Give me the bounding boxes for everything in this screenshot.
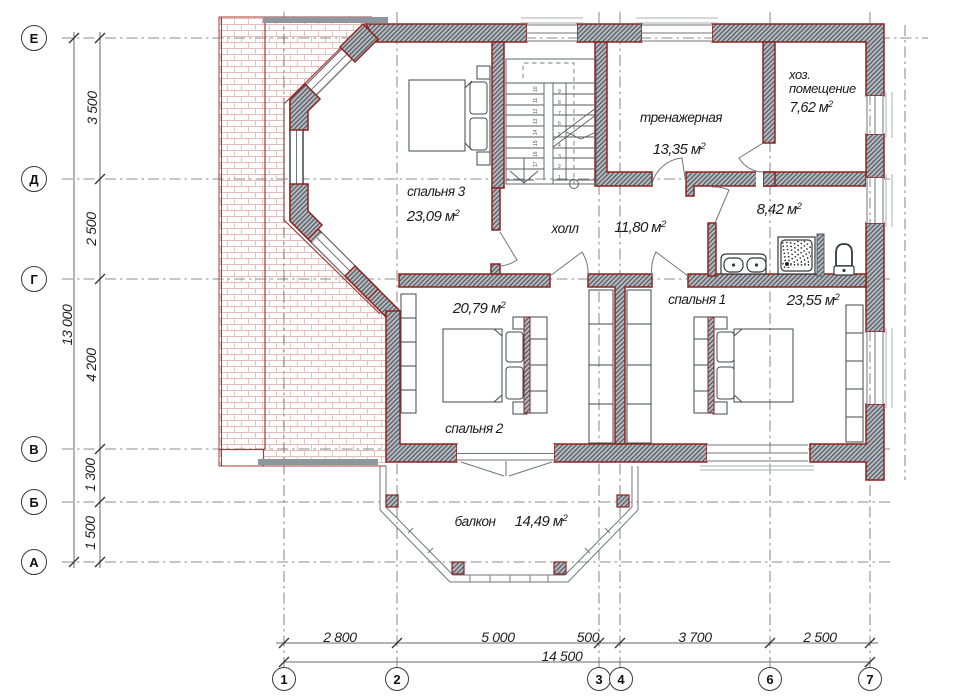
svg-text:11: 11 <box>533 98 539 103</box>
svg-text:спальня 3: спальня 3 <box>407 184 466 199</box>
svg-text:Д: Д <box>29 172 39 187</box>
svg-text:2: 2 <box>393 672 400 687</box>
svg-text:7: 7 <box>866 672 873 687</box>
svg-text:7,62 м2: 7,62 м2 <box>790 99 834 116</box>
svg-text:1 500: 1 500 <box>82 516 98 550</box>
svg-text:10: 10 <box>533 86 539 92</box>
svg-text:13 000: 13 000 <box>59 304 75 346</box>
svg-text:5 000: 5 000 <box>481 629 515 645</box>
svg-text:балкон: балкон <box>455 514 497 529</box>
svg-text:2 500: 2 500 <box>83 212 99 247</box>
svg-text:холл: холл <box>550 221 579 236</box>
svg-text:7: 7 <box>558 111 561 117</box>
svg-text:Е: Е <box>30 31 39 46</box>
svg-text:14 500: 14 500 <box>541 648 583 664</box>
svg-text:хоз.: хоз. <box>788 67 811 82</box>
svg-text:5: 5 <box>558 132 561 138</box>
svg-text:14,49 м2: 14,49 м2 <box>515 513 569 530</box>
svg-text:15: 15 <box>533 140 539 146</box>
svg-text:16: 16 <box>533 151 539 157</box>
svg-text:23,09 м2: 23,09 м2 <box>406 208 461 225</box>
svg-text:Г: Г <box>30 272 38 287</box>
svg-text:Б: Б <box>29 495 38 510</box>
svg-text:спальня 2: спальня 2 <box>445 421 504 436</box>
svg-text:3 700: 3 700 <box>678 629 712 645</box>
svg-text:1 300: 1 300 <box>82 458 98 492</box>
svg-text:11,80 м2: 11,80 м2 <box>614 219 667 236</box>
svg-text:4: 4 <box>617 672 625 687</box>
svg-text:3 500: 3 500 <box>84 91 100 125</box>
svg-text:1: 1 <box>558 175 561 181</box>
svg-text:4: 4 <box>558 143 561 149</box>
svg-text:А: А <box>29 555 39 570</box>
svg-text:8,42 м2: 8,42 м2 <box>757 201 803 218</box>
svg-text:6: 6 <box>766 672 773 687</box>
svg-text:13,35 м2: 13,35 м2 <box>653 141 707 158</box>
svg-text:500: 500 <box>577 629 600 645</box>
svg-text:6: 6 <box>558 121 561 127</box>
svg-text:3: 3 <box>558 154 561 160</box>
svg-text:спальня 1: спальня 1 <box>668 292 726 307</box>
svg-text:8: 8 <box>558 100 561 106</box>
svg-text:В: В <box>29 442 38 457</box>
svg-text:тренажерная: тренажерная <box>640 110 722 125</box>
svg-text:20,79 м2: 20,79 м2 <box>452 300 507 317</box>
svg-text:2 800: 2 800 <box>322 629 357 645</box>
svg-text:4 200: 4 200 <box>83 348 99 382</box>
svg-text:13: 13 <box>533 118 539 124</box>
svg-text:3: 3 <box>595 672 602 687</box>
svg-text:помещение: помещение <box>789 81 856 96</box>
svg-text:23,55 м2: 23,55 м2 <box>786 292 841 309</box>
svg-text:12: 12 <box>533 108 539 114</box>
svg-text:2 500: 2 500 <box>802 629 837 645</box>
svg-text:17: 17 <box>533 161 539 167</box>
svg-text:1: 1 <box>280 672 287 687</box>
svg-text:2: 2 <box>558 164 561 170</box>
svg-text:14: 14 <box>533 129 539 135</box>
svg-text:9: 9 <box>558 89 561 95</box>
